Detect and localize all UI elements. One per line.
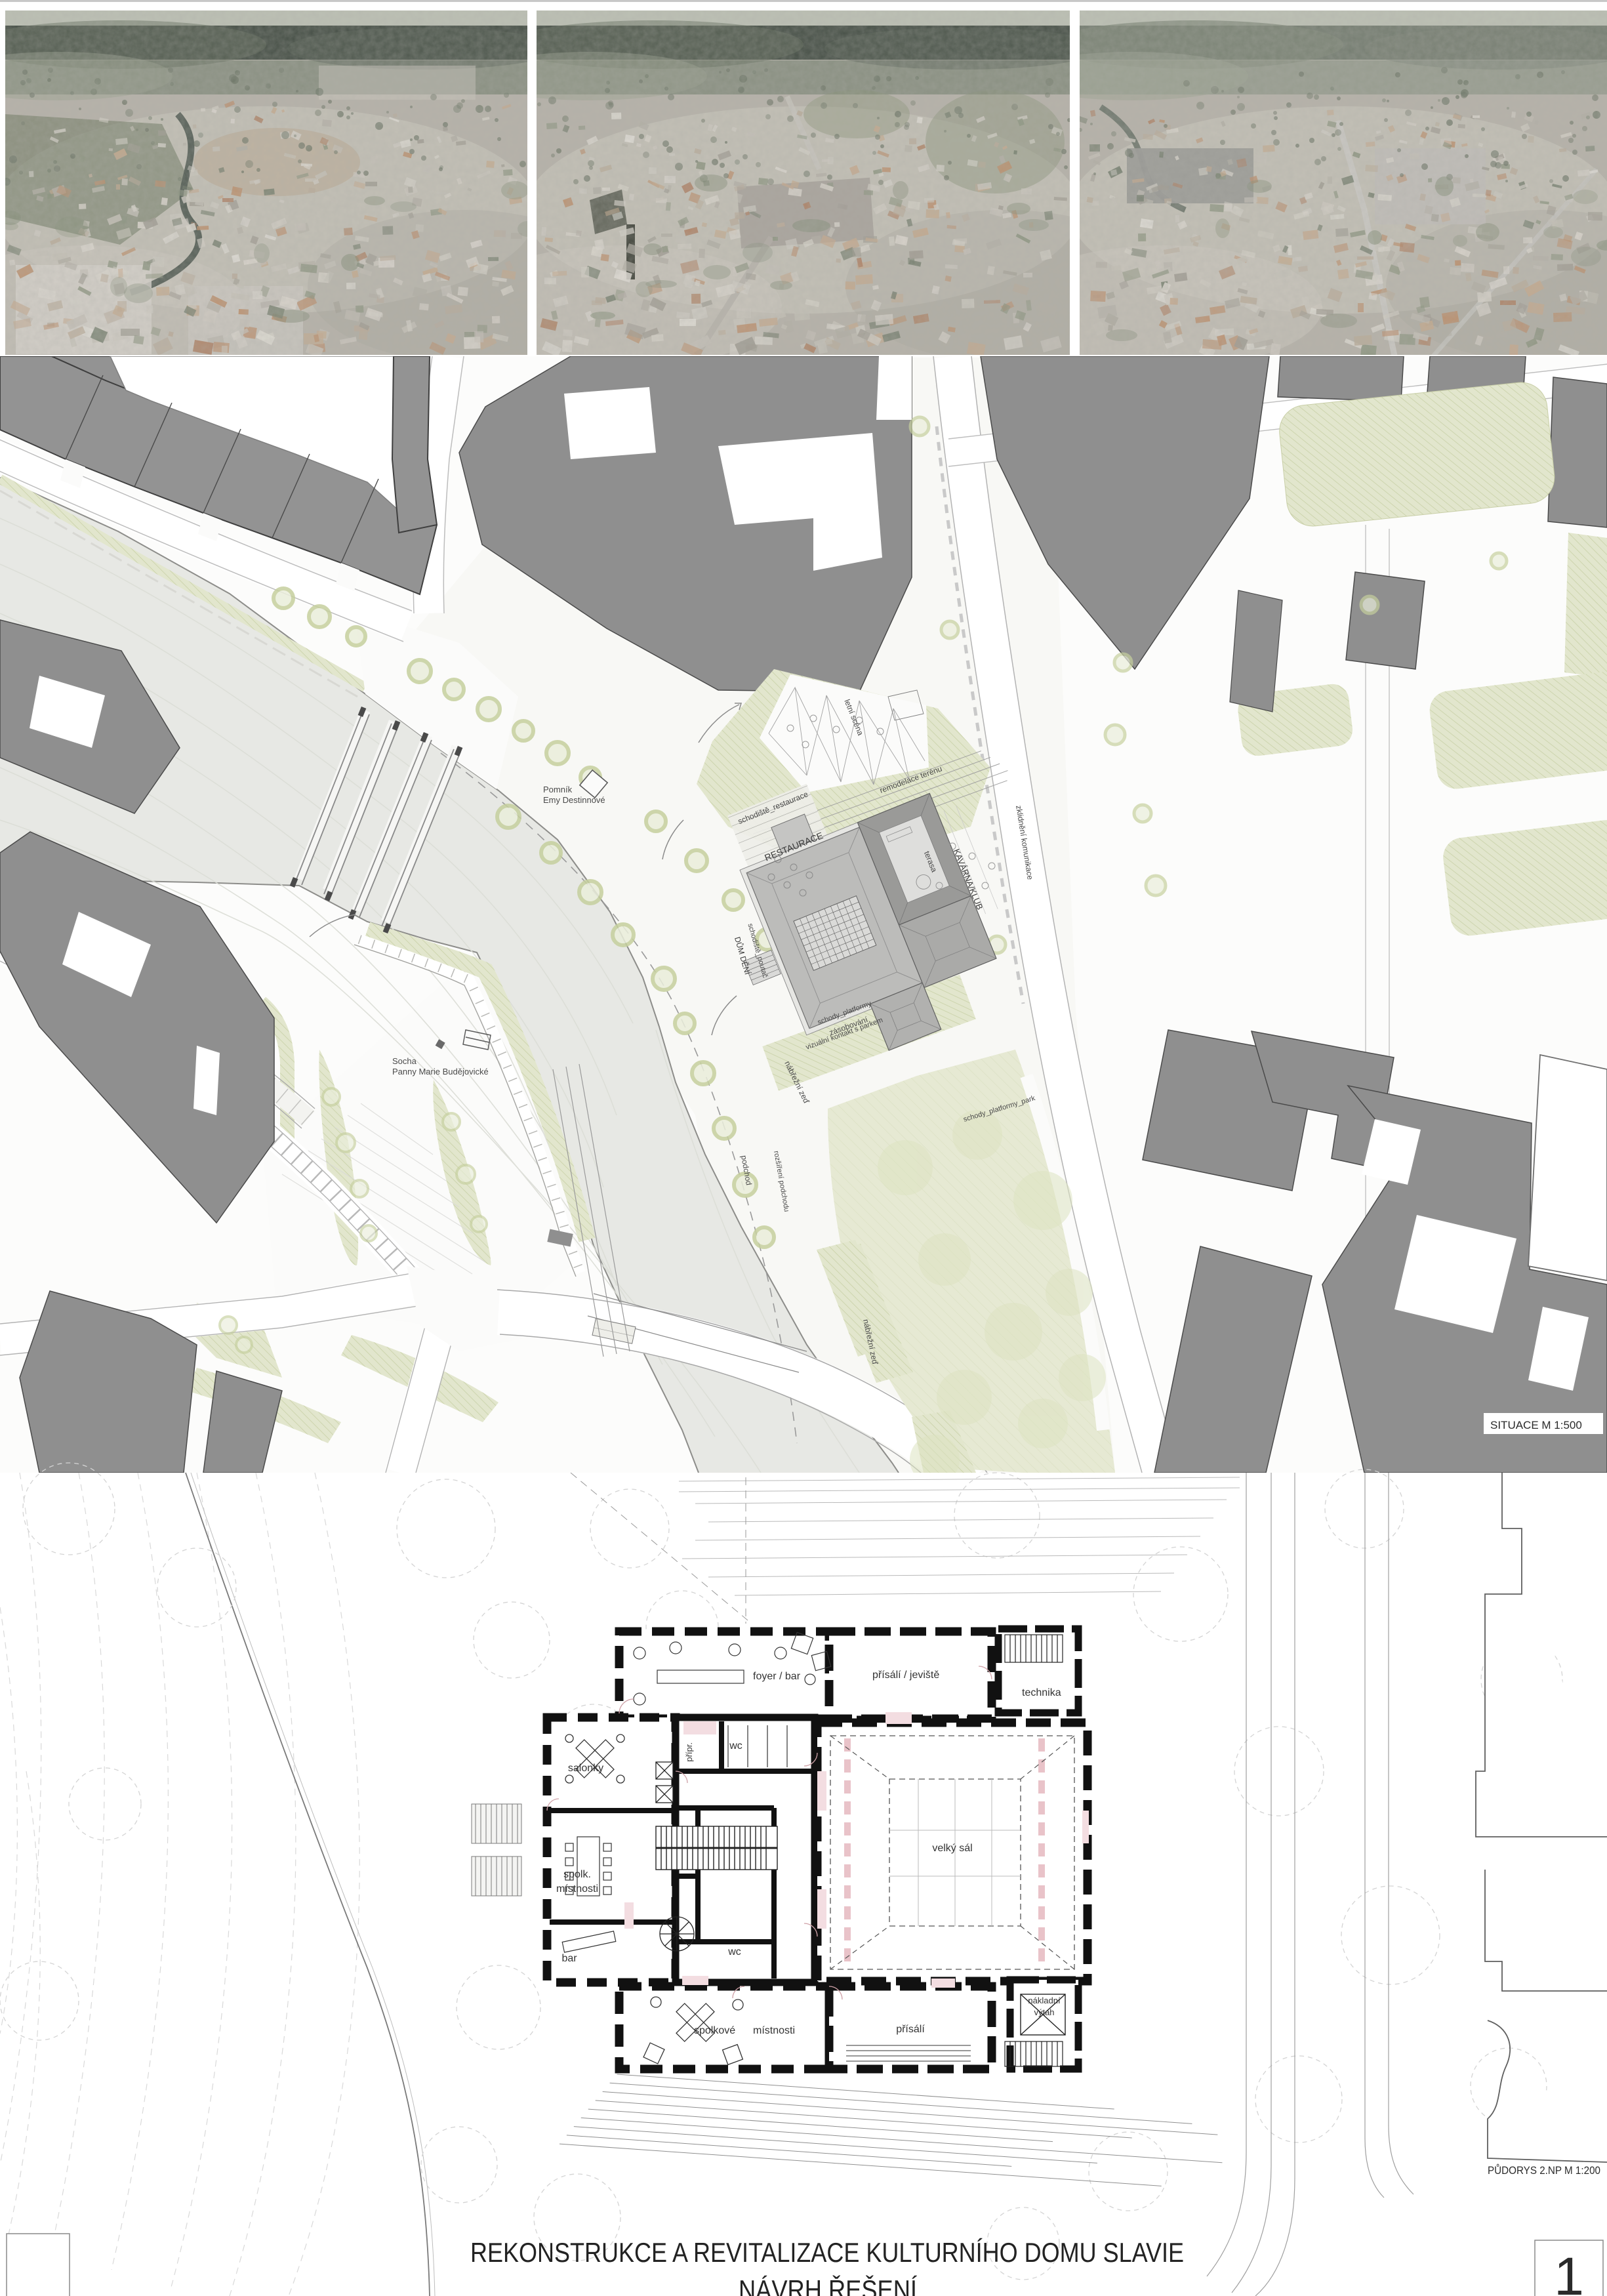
svg-text:nákladní: nákladní bbox=[1028, 1996, 1061, 2005]
svg-text:wc: wc bbox=[729, 1740, 742, 1752]
svg-text:výtah: výtah bbox=[1034, 2007, 1054, 2017]
svg-text:Emy Destinnové: Emy Destinnové bbox=[543, 795, 605, 805]
svg-text:Socha: Socha bbox=[392, 1056, 417, 1066]
svg-text:spolkové: spolkové bbox=[694, 2025, 735, 2036]
svg-text:spolk.: spolk. bbox=[563, 1869, 591, 1880]
svg-text:1: 1 bbox=[1554, 2247, 1584, 2296]
svg-text:NÁVRH ŘEŠENÍ: NÁVRH ŘEŠENÍ bbox=[739, 2274, 917, 2296]
svg-text:SITUACE M 1:500: SITUACE M 1:500 bbox=[1490, 1419, 1582, 1431]
svg-text:wc: wc bbox=[727, 1946, 741, 1958]
svg-text:přísálí / jeviště: přísálí / jeviště bbox=[872, 1670, 939, 1681]
svg-text:přípr.: přípr. bbox=[684, 1742, 694, 1762]
svg-text:přísálí: přísálí bbox=[896, 2024, 925, 2035]
svg-text:bar: bar bbox=[561, 1953, 577, 1964]
svg-text:PŮDORYS 2.NP M 1:200: PŮDORYS 2.NP M 1:200 bbox=[1488, 2164, 1600, 2177]
svg-text:REKONSTRUKCE A REVITALIZACE KU: REKONSTRUKCE A REVITALIZACE KULTURNÍHO D… bbox=[470, 2237, 1184, 2268]
svg-text:místnosti: místnosti bbox=[753, 2025, 795, 2036]
svg-text:velký sál: velký sál bbox=[932, 1843, 972, 1854]
svg-text:místnosti: místnosti bbox=[556, 1883, 598, 1895]
svg-text:Pomník: Pomník bbox=[543, 785, 573, 794]
svg-text:salonky: salonky bbox=[568, 1763, 603, 1774]
svg-text:technika: technika bbox=[1022, 1687, 1061, 1698]
svg-text:Panny Marie Budějovické: Panny Marie Budějovické bbox=[392, 1067, 489, 1076]
svg-text:foyer / bar: foyer / bar bbox=[753, 1671, 801, 1682]
